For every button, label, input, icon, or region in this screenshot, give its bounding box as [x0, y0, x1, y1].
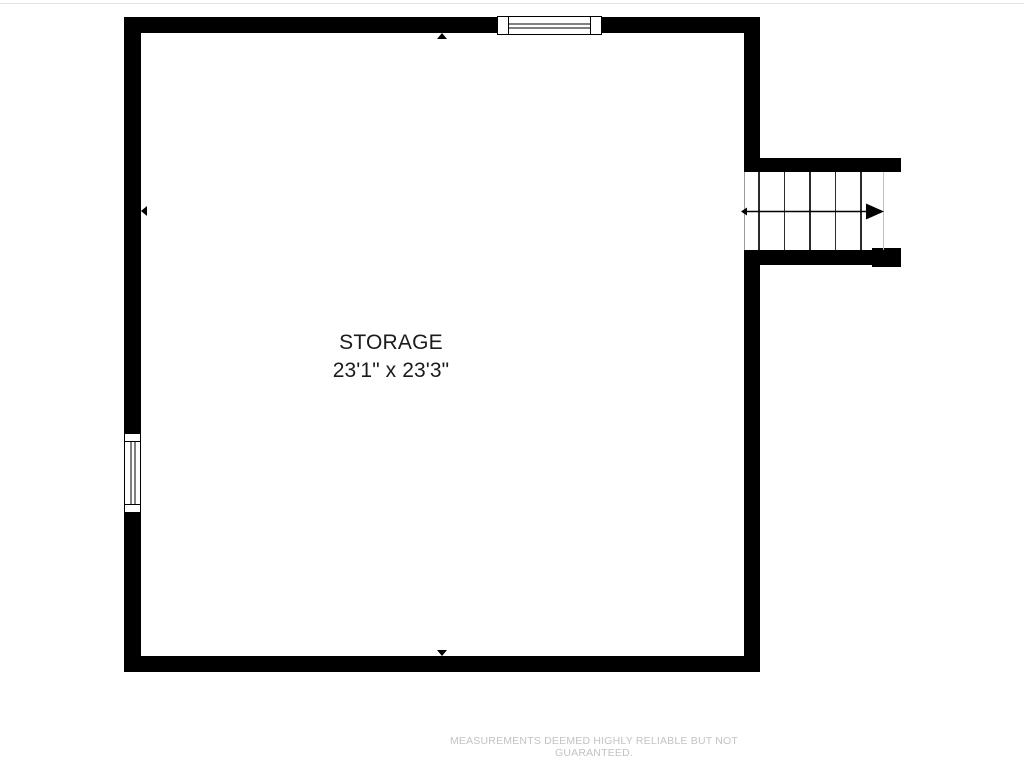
- stair-wall-top: [744, 158, 901, 172]
- stair-wall-end-cap: [872, 248, 901, 267]
- left-wall-marker-icon: [141, 206, 147, 216]
- wall-right-lower: [744, 250, 760, 672]
- room-label-group: STORAGE 23'1" x 23'3": [271, 329, 511, 385]
- disclaimer-text: MEASUREMENTS DEEMED HIGHLY RELIABLE BUT …: [444, 735, 744, 759]
- arrow-head-right: [866, 204, 884, 220]
- top-window: [497, 16, 602, 35]
- window-glazing-bar: [130, 442, 135, 504]
- wall-top: [124, 17, 760, 33]
- window-glazing-bar: [509, 23, 590, 28]
- top-wall-marker-icon: [437, 33, 447, 39]
- room-dimensions-label: 23'1" x 23'3": [271, 357, 511, 385]
- window-frame-cap: [125, 504, 140, 512]
- left-window: [124, 433, 141, 513]
- wall-bottom: [124, 656, 760, 672]
- window-frame-cap: [498, 17, 509, 34]
- window-frame-cap: [590, 17, 601, 34]
- floorplan-canvas: STORAGE 23'1" x 23'3" MEASUREMENTS DEEME…: [0, 0, 1024, 768]
- page-edge-line: [0, 3, 1024, 4]
- window-frame-cap: [125, 434, 140, 442]
- bottom-wall-marker-icon: [437, 650, 447, 656]
- stair-direction-arrow-icon: [736, 172, 906, 250]
- wall-left: [124, 17, 141, 672]
- room-name-label: STORAGE: [271, 329, 511, 357]
- wall-right-upper: [744, 17, 760, 172]
